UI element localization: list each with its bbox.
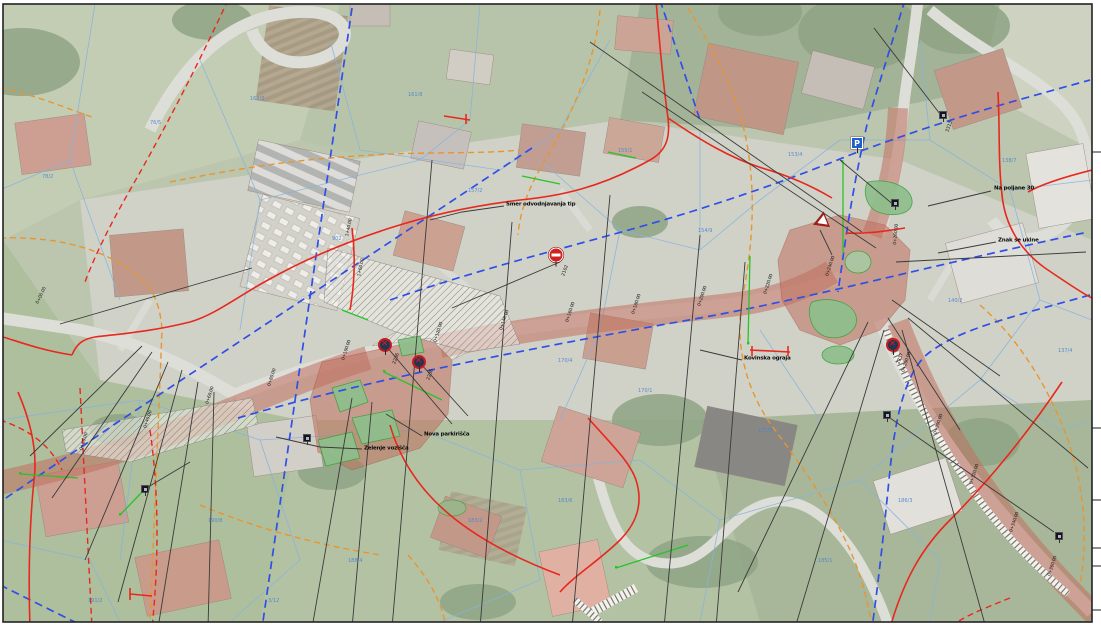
plan-sheet: Smer odvodnjavanja tipNa poljane 30Znak … xyxy=(0,0,1101,630)
map-canvas[interactable] xyxy=(0,0,1101,630)
photo-veil xyxy=(3,4,1092,622)
